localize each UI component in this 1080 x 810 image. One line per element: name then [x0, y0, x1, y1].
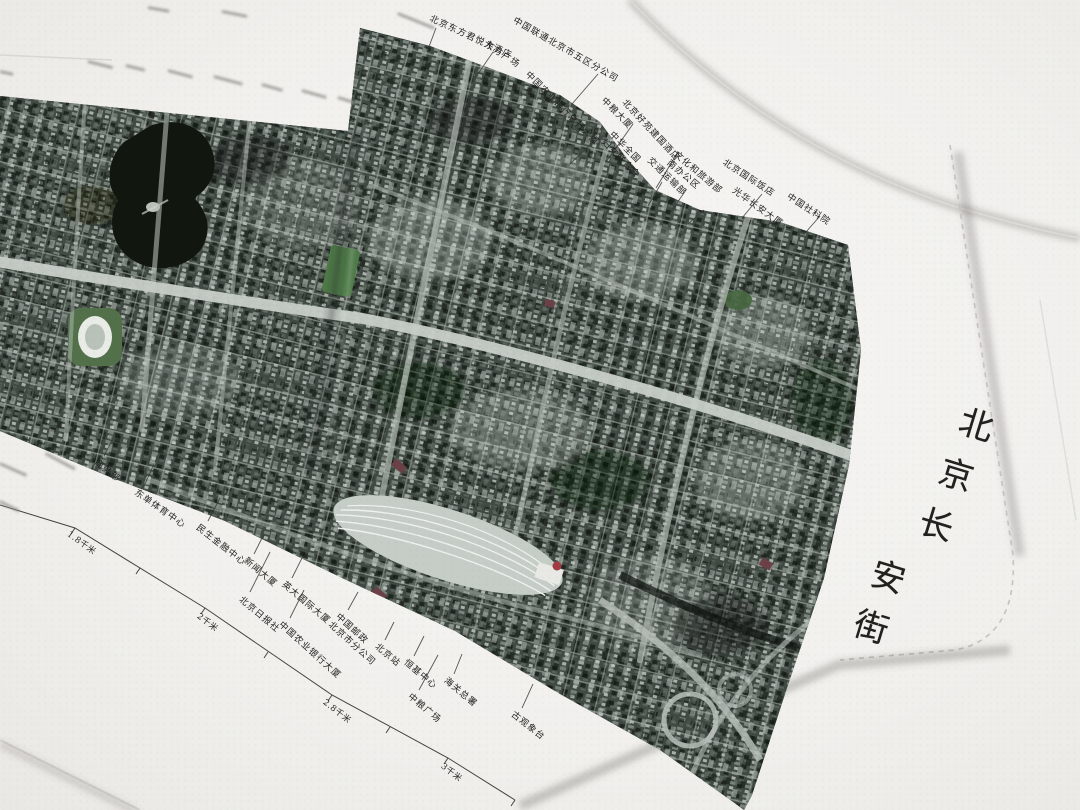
photo-of-map-book: 北京东方君悦大酒店 东方广场 中国联通北京市五区分公司 中国农业银行总行大厦 中… — [0, 0, 1080, 810]
park-blob — [724, 290, 752, 310]
map-artwork — [0, 0, 1080, 810]
stadium — [68, 308, 122, 366]
satellite-map-strip — [0, 0, 1080, 810]
red-roof-landmark — [553, 562, 562, 571]
